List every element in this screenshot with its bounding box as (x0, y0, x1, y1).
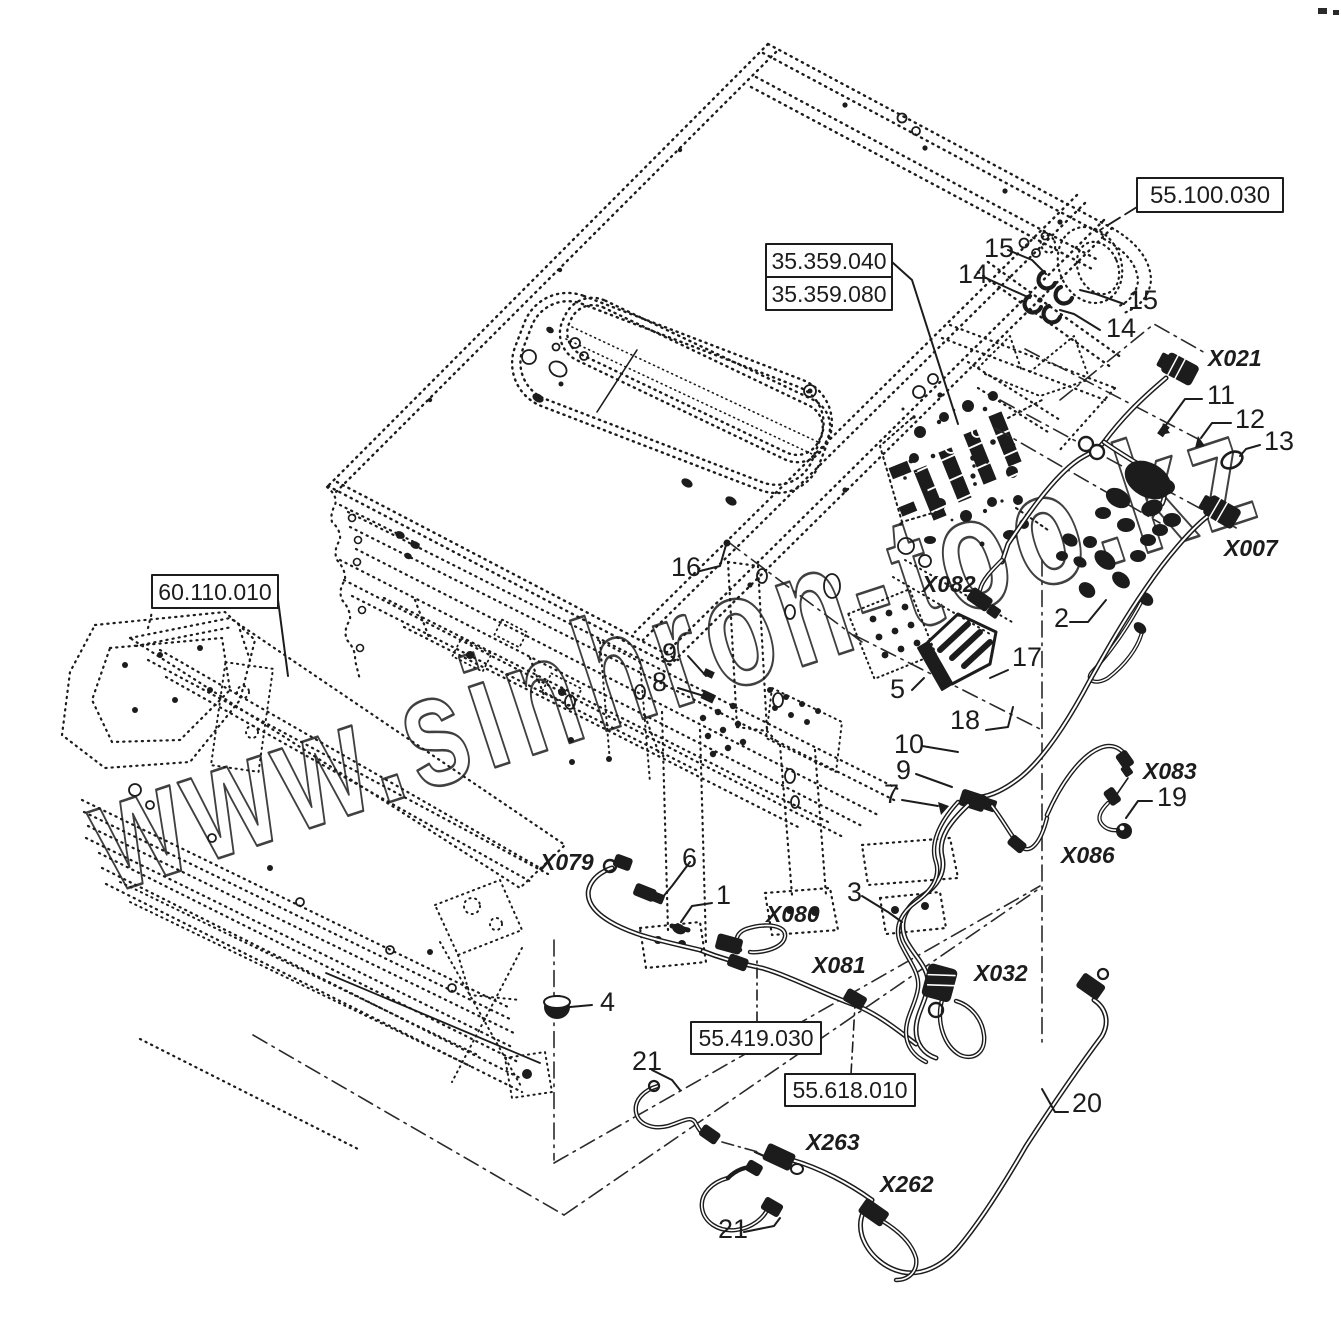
svg-text:X082: X082 (920, 571, 976, 597)
svg-text:3: 3 (847, 877, 862, 907)
svg-text:12: 12 (1235, 404, 1265, 434)
svg-text:14: 14 (1106, 313, 1136, 343)
svg-text:7: 7 (884, 779, 899, 809)
svg-text:55.100.030: 55.100.030 (1150, 182, 1270, 209)
svg-text:17: 17 (1012, 642, 1042, 672)
svg-text:60.110.010: 60.110.010 (158, 579, 271, 605)
svg-text:X007: X007 (1222, 535, 1279, 561)
svg-text:14: 14 (958, 259, 988, 289)
svg-text:X262: X262 (878, 1171, 934, 1197)
svg-text:15: 15 (984, 233, 1014, 263)
svg-text:21: 21 (632, 1046, 662, 1076)
svg-text:X081: X081 (810, 952, 866, 978)
svg-text:20: 20 (1072, 1088, 1102, 1118)
svg-text:2: 2 (1054, 603, 1069, 633)
svg-text:X263: X263 (804, 1129, 860, 1155)
svg-text:X086: X086 (1059, 842, 1115, 868)
svg-text:X079: X079 (538, 849, 594, 875)
svg-text:X032: X032 (972, 960, 1028, 986)
svg-text:X083: X083 (1141, 758, 1197, 784)
svg-text:9: 9 (662, 638, 677, 668)
svg-text:16: 16 (671, 552, 701, 582)
svg-text:55.618.010: 55.618.010 (792, 1077, 907, 1103)
svg-text:15: 15 (1128, 285, 1158, 315)
svg-text:4: 4 (600, 987, 615, 1017)
svg-text:5: 5 (890, 674, 905, 704)
svg-text:19: 19 (1157, 782, 1187, 812)
svg-text:1: 1 (716, 880, 731, 910)
svg-text:13: 13 (1264, 426, 1294, 456)
svg-text:X021: X021 (1206, 345, 1262, 371)
svg-text:35.359.040: 35.359.040 (771, 248, 886, 274)
svg-text:35.359.080: 35.359.080 (771, 281, 886, 307)
svg-text:55.419.030: 55.419.030 (698, 1025, 813, 1051)
svg-text:X080: X080 (764, 901, 820, 927)
svg-text:11: 11 (1207, 380, 1235, 410)
svg-text:18: 18 (950, 705, 980, 735)
svg-text:6: 6 (682, 843, 697, 873)
svg-text:21: 21 (718, 1214, 748, 1244)
svg-text:8: 8 (652, 667, 667, 697)
